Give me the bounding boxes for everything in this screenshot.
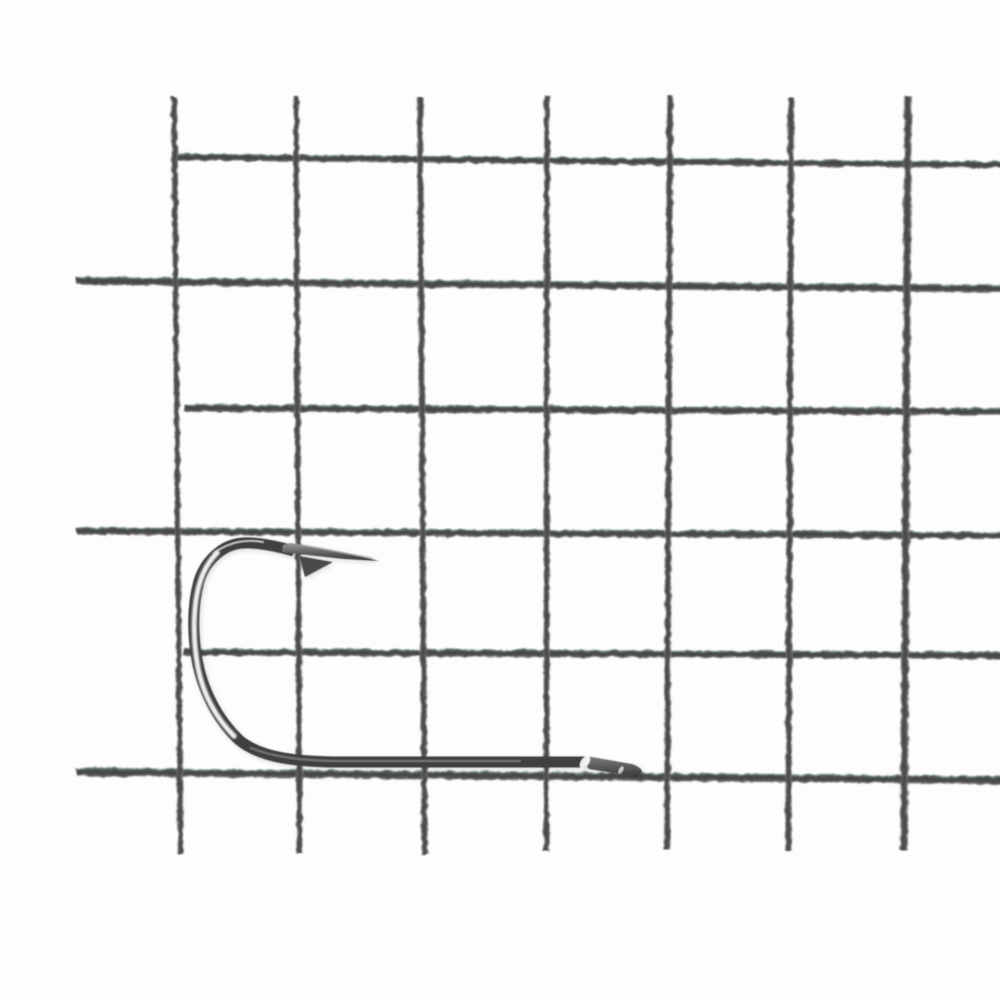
mesh-vertical-wire (543, 96, 550, 851)
mesh-horizontal-wire (76, 277, 1000, 293)
photo-canvas (0, 0, 1000, 1000)
mesh-horizontal-wire (177, 153, 1000, 168)
fishing-hook (194, 541, 642, 777)
mesh-vertical-wire (664, 96, 674, 850)
mesh-horizontal-wire (184, 404, 1000, 416)
mesh-horizontal-wire (76, 768, 1000, 785)
mesh-vertical-wire (171, 97, 184, 854)
mesh-vertical-wire (900, 96, 912, 850)
wire-mesh-grid (76, 96, 1000, 854)
mesh-vertical-wire (293, 96, 303, 853)
product-photo: Close-up product photograph of a single … (0, 0, 1000, 1000)
mesh-horizontal-wire (184, 648, 1000, 659)
mesh-vertical-wire (785, 97, 795, 850)
mesh-vertical-wire (417, 97, 429, 854)
hook-barb (299, 556, 333, 577)
mesh-horizontal-wire (76, 527, 1000, 540)
